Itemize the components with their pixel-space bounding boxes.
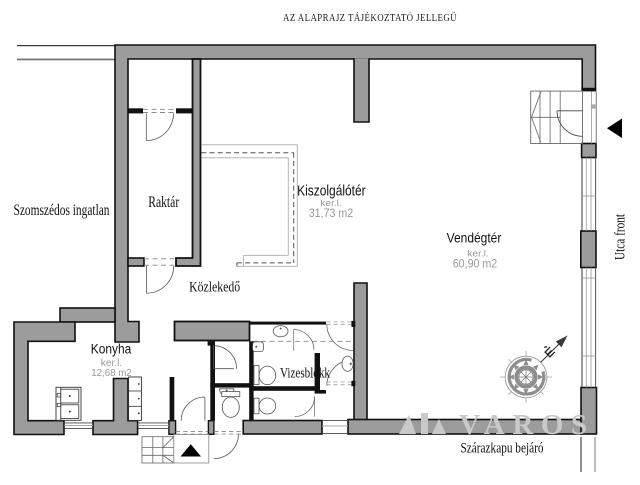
svg-text:Utca front: Utca front bbox=[613, 214, 629, 260]
svg-text:Raktár: Raktár bbox=[148, 194, 179, 211]
svg-text:Vendégtér: Vendégtér bbox=[447, 230, 502, 246]
svg-text:AZ ALAPRAJZ TÁJÉKOZTATÓ JELLE: AZ ALAPRAJZ TÁJÉKOZTATÓ JELLEGŰ bbox=[283, 12, 457, 24]
svg-text:Szomszédos ingatlan: Szomszédos ingatlan bbox=[14, 202, 110, 219]
svg-text:Vizesblokk: Vizesblokk bbox=[280, 366, 331, 382]
svg-text:Konyha: Konyha bbox=[91, 342, 132, 357]
svg-text:Szárazkapu bejáró: Szárazkapu bejáró bbox=[461, 440, 544, 456]
svg-text:31,73 m2: 31,73 m2 bbox=[309, 208, 354, 220]
svg-text:ker.l.: ker.l. bbox=[320, 198, 341, 208]
svg-text:60,90 m2: 60,90 m2 bbox=[453, 259, 498, 271]
svg-text:VAROS: VAROS bbox=[459, 409, 595, 441]
svg-text:Közlekedő: Közlekedő bbox=[189, 280, 240, 296]
svg-text:12,68 m2: 12,68 m2 bbox=[91, 367, 132, 379]
